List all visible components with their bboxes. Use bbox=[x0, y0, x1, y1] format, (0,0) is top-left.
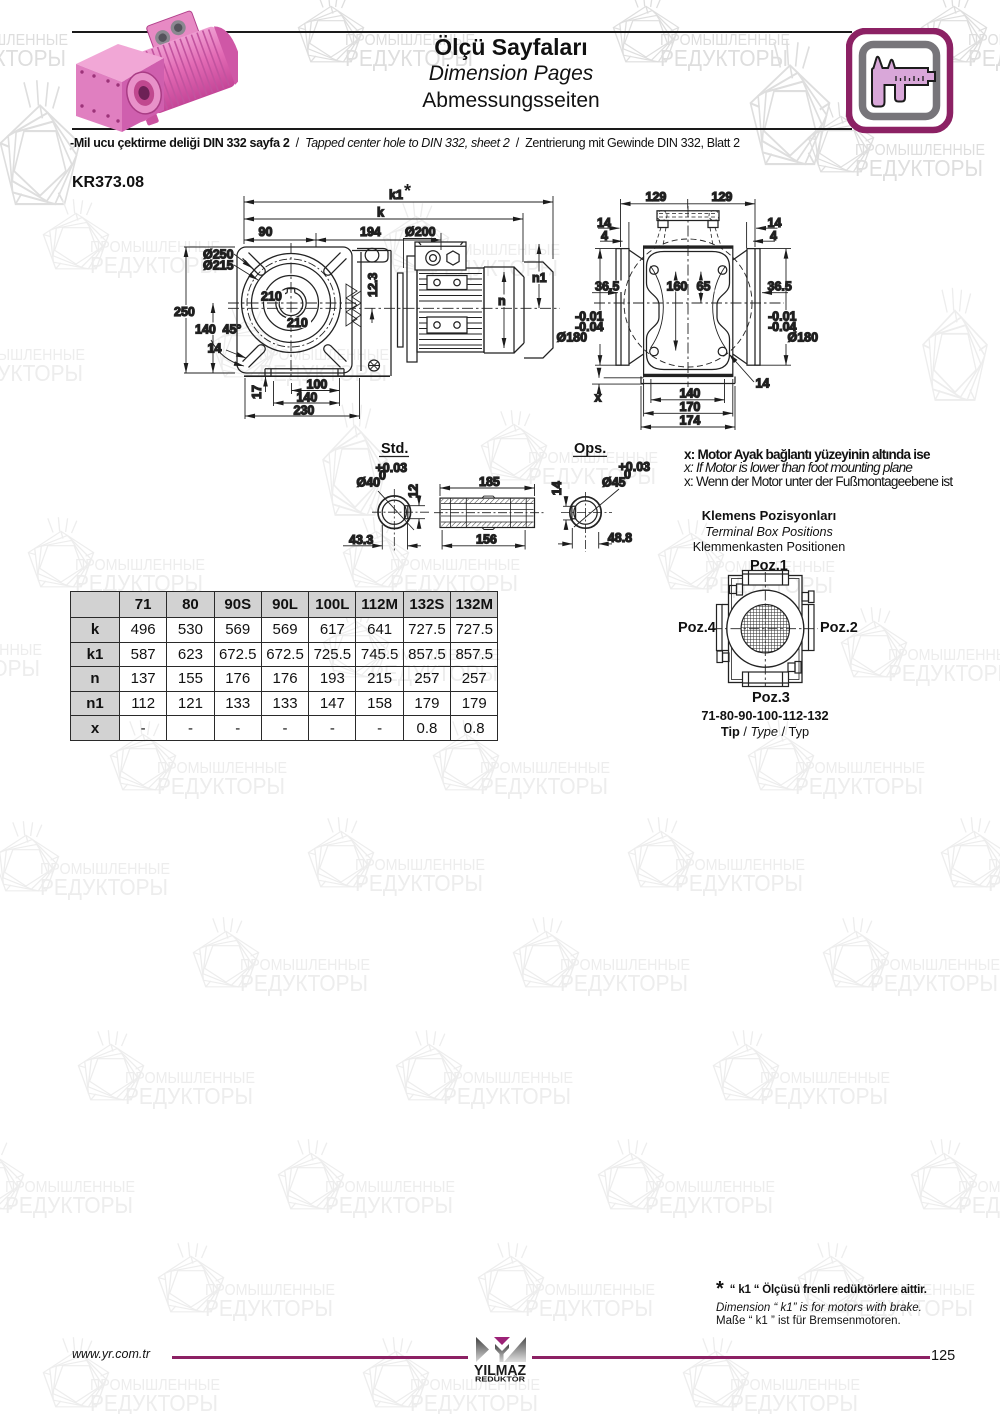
svg-text:k1: k1 bbox=[389, 188, 403, 202]
svg-text:156: 156 bbox=[476, 533, 497, 547]
svg-text:k: k bbox=[377, 206, 384, 220]
svg-text:160: 160 bbox=[667, 280, 688, 294]
svg-text:90: 90 bbox=[259, 225, 273, 239]
svg-text:250: 250 bbox=[174, 305, 195, 319]
svg-text:x: x bbox=[595, 391, 602, 405]
svg-text:n1: n1 bbox=[532, 271, 547, 285]
svg-text:Ø180: Ø180 bbox=[788, 331, 819, 345]
svg-text:100: 100 bbox=[307, 378, 328, 392]
svg-text:140: 140 bbox=[680, 387, 701, 401]
svg-text:194: 194 bbox=[360, 225, 381, 239]
svg-text:12.3: 12.3 bbox=[366, 273, 380, 297]
svg-text:Ø40: Ø40 bbox=[357, 476, 381, 490]
svg-text:43.3: 43.3 bbox=[349, 533, 373, 547]
svg-text:36.5: 36.5 bbox=[768, 280, 792, 294]
svg-text:185: 185 bbox=[479, 475, 500, 489]
svg-text:n: n bbox=[498, 294, 506, 308]
svg-text:14: 14 bbox=[756, 377, 770, 391]
svg-text:14: 14 bbox=[208, 342, 222, 356]
svg-text:36.5: 36.5 bbox=[595, 280, 619, 294]
svg-text:0: 0 bbox=[379, 469, 386, 483]
svg-text:Ops.: Ops. bbox=[574, 441, 606, 457]
svg-text:129: 129 bbox=[646, 190, 667, 204]
svg-text:65: 65 bbox=[697, 280, 711, 294]
svg-text:140: 140 bbox=[297, 391, 318, 405]
svg-text:Ø200: Ø200 bbox=[405, 225, 436, 239]
svg-text:Std.: Std. bbox=[381, 441, 408, 457]
svg-text:0: 0 bbox=[624, 468, 631, 482]
svg-text:210: 210 bbox=[261, 290, 282, 304]
svg-text:12: 12 bbox=[407, 484, 421, 498]
svg-text:129: 129 bbox=[712, 190, 733, 204]
svg-text:REDÜKTÖR: REDÜKTÖR bbox=[475, 1375, 525, 1383]
svg-text:140: 140 bbox=[195, 323, 216, 337]
svg-text:14: 14 bbox=[550, 481, 564, 495]
svg-text:210: 210 bbox=[287, 316, 308, 330]
svg-text:Ø215: Ø215 bbox=[203, 259, 234, 273]
svg-text:Ø45: Ø45 bbox=[602, 476, 626, 490]
svg-text:*: * bbox=[404, 181, 411, 201]
svg-text:17: 17 bbox=[250, 385, 264, 399]
svg-text:Ø180: Ø180 bbox=[557, 331, 588, 345]
svg-text:170: 170 bbox=[680, 400, 701, 414]
svg-text:230: 230 bbox=[294, 404, 315, 418]
svg-text:174: 174 bbox=[680, 414, 701, 428]
svg-text:48.8: 48.8 bbox=[608, 531, 632, 545]
svg-text:45°: 45° bbox=[223, 323, 242, 337]
